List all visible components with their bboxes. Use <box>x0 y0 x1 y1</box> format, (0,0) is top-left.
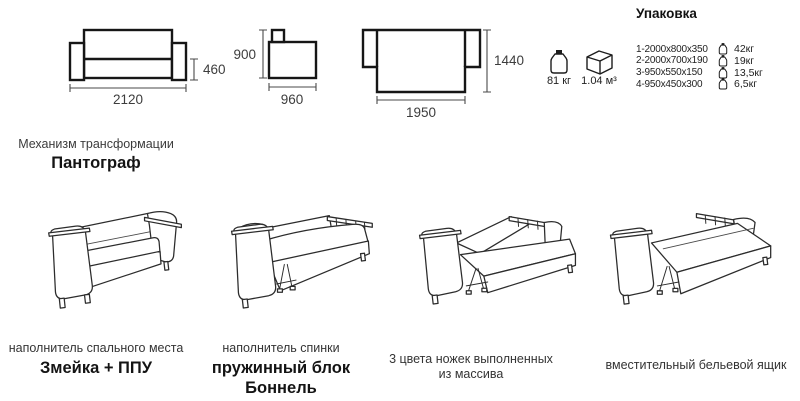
feature-storage-box: вместительный бельевой ящик <box>598 358 794 373</box>
feature-label: наполнитель спинки <box>200 341 362 356</box>
front-width-label: 2120 <box>113 92 143 107</box>
front-left-arm <box>70 43 84 80</box>
package-size-label: 3-950x550x150 <box>636 67 718 78</box>
total-volume-label: 1.04 м³ <box>577 75 621 87</box>
feature-leg-colors: 3 цвета ножек выполненных из массива <box>386 352 556 382</box>
bed-width-dimension-line <box>483 30 491 92</box>
sofa-leg <box>59 298 65 308</box>
sofa-closed-illustration <box>8 198 192 324</box>
package-size-label: 4-950x450x300 <box>636 79 718 90</box>
package-weight-icon <box>718 43 728 55</box>
side-body <box>269 42 316 78</box>
sofa-mechanism-foot <box>673 288 678 291</box>
unfolded-width-label: 1440 <box>494 53 524 68</box>
sofa-leg <box>623 295 629 304</box>
sofa-unfolded-bed-illustration <box>598 198 790 325</box>
sofa-leg <box>361 253 366 261</box>
packaging-title: Упаковка <box>636 6 697 21</box>
volume-cube-icon <box>582 48 616 75</box>
total-weight-block: 81 кг <box>541 50 577 87</box>
package-size-label: 2-2000x700x190 <box>636 55 718 66</box>
sofa-leg <box>242 299 248 308</box>
feature-label: 3 цвета ножек выполненных из массива <box>386 352 556 382</box>
side-backrest-top <box>272 30 284 42</box>
unfolded-outline <box>363 30 480 92</box>
package-weight-icon <box>718 67 728 79</box>
total-weight-label: 81 кг <box>541 75 577 87</box>
side-height-label: 900 <box>233 47 256 62</box>
side-depth-label: 960 <box>281 92 304 107</box>
sofa-leg <box>85 294 91 303</box>
sofa-mechanism-foot <box>482 288 487 291</box>
feature-sleeping-filler: наполнитель спального места Змейка + ППУ <box>4 341 188 378</box>
package-weight-label: 13,5кг <box>734 67 792 79</box>
height-dimension-line <box>259 30 267 78</box>
sofa-leg <box>568 265 573 273</box>
sofa-left-arm <box>234 224 276 299</box>
feature-value: Змейка + ППУ <box>4 358 188 378</box>
packaging-list: 1-2000x800x350 42кг 2-2000x700x190 19кг … <box>636 43 792 90</box>
packaging-row: 2-2000x700x190 19кг <box>636 55 792 67</box>
package-weight-label: 6,5кг <box>734 78 792 90</box>
front-seat-height-label: 460 <box>203 62 226 77</box>
package-weight-icon <box>718 55 728 67</box>
feature-label: вместительный бельевой ящик <box>598 358 794 373</box>
length-dimension-line <box>377 96 465 104</box>
sofa-mechanism-foot <box>466 291 471 294</box>
feature-back-filler: наполнитель спинки пружинный блок Боннел… <box>200 341 362 398</box>
package-weight-icon <box>718 78 728 90</box>
spec-sheet: 2120 460 900 960 1950 1440 81 кг 1 <box>0 0 800 401</box>
sofa-leg <box>763 257 768 265</box>
sofa-left-arm <box>422 228 463 295</box>
package-weight-label: 19кг <box>734 55 792 67</box>
sofa-left-arm <box>51 226 92 299</box>
front-backrest <box>84 30 172 78</box>
mechanism-block: Механизм трансформации Пантограф <box>8 137 184 173</box>
sofa-mechanism-foot <box>278 289 283 292</box>
sofa-mechanism-foot <box>657 291 662 294</box>
package-size-label: 1-2000x800x350 <box>636 44 718 55</box>
sofa-left-arm <box>613 228 654 296</box>
unfolded-length-label: 1950 <box>406 105 436 120</box>
total-volume-block: 1.04 м³ <box>577 48 621 87</box>
sofa-unfolding-step2-illustration <box>206 198 392 325</box>
package-weight-label: 42кг <box>734 43 792 55</box>
depth-dimension-line <box>269 83 316 91</box>
seat-height-dimension-line <box>190 59 198 80</box>
side-view-diagram: 900 960 <box>228 18 343 113</box>
packaging-row: 1-2000x800x350 42кг <box>636 43 792 55</box>
sofa-mechanism-foot <box>290 286 295 289</box>
sofa-leg <box>164 261 169 270</box>
front-right-arm <box>172 43 186 80</box>
mechanism-name: Пантограф <box>8 154 184 173</box>
packaging-row: 4-950x450x300 6,5кг <box>636 78 792 90</box>
mechanism-label: Механизм трансформации <box>8 137 184 151</box>
width-dimension-line <box>70 84 186 92</box>
sofa-unfolding-step3-illustration <box>402 198 592 325</box>
feature-label: наполнитель спального места <box>4 341 188 356</box>
weight-icon <box>548 50 570 75</box>
unfolded-view-diagram: 1950 1440 <box>355 18 527 126</box>
packaging-row: 3-950x550x150 13,5кг <box>636 67 792 79</box>
feature-value: пружинный блок Боннель <box>200 358 362 398</box>
sofa-leg <box>432 295 438 304</box>
